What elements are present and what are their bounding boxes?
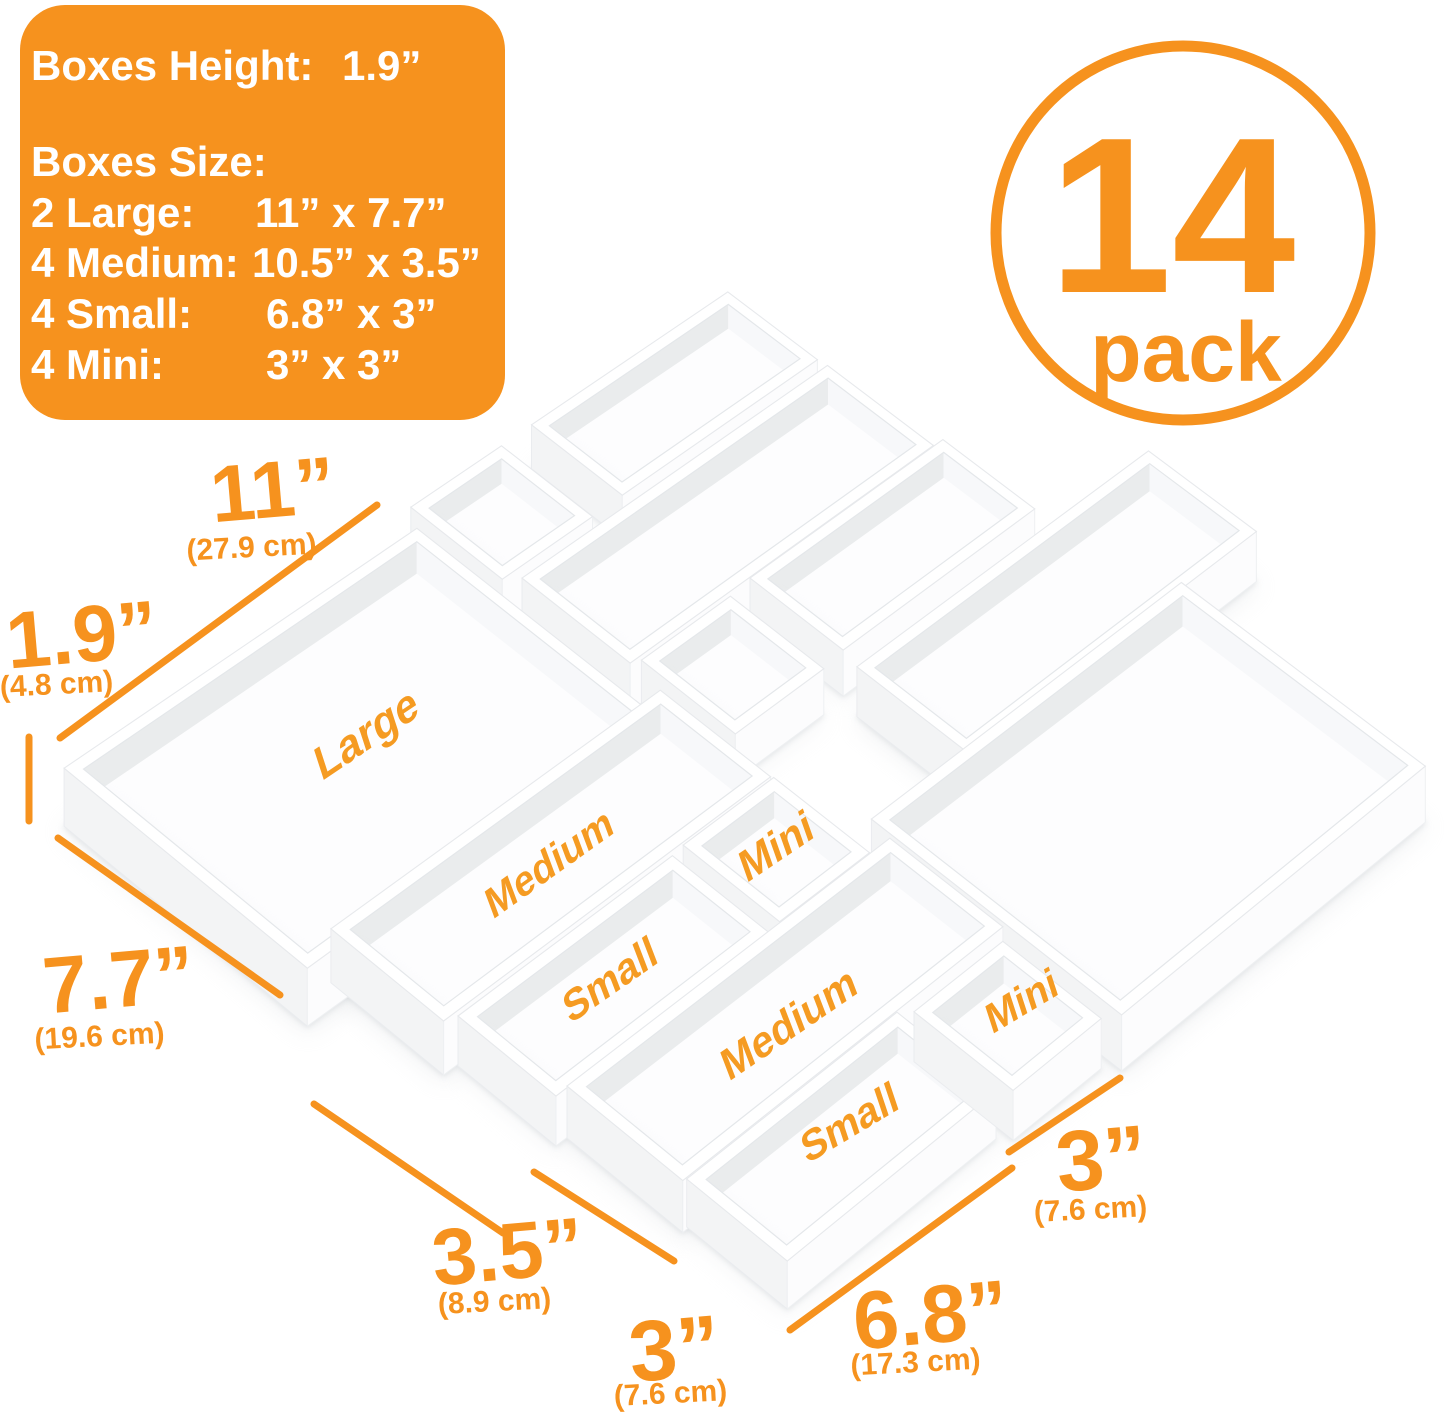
svg-text:11” x 7.7”: 11” x 7.7” [255, 189, 446, 236]
svg-text:(27.9 cm): (27.9 cm) [186, 528, 318, 568]
svg-text:(8.9 cm): (8.9 cm) [437, 1282, 552, 1321]
svg-text:6.8” x 3”: 6.8” x 3” [266, 290, 436, 337]
svg-text:(17.3 cm): (17.3 cm) [850, 1343, 982, 1383]
svg-text:7.7”: 7.7” [39, 929, 197, 1031]
svg-text:2 Large:: 2 Large: [31, 189, 194, 236]
svg-text:11”: 11” [207, 440, 339, 540]
svg-text:4 Small:: 4 Small: [31, 290, 192, 337]
svg-text:3” x 3”: 3” x 3” [266, 341, 401, 388]
svg-text:10.5” x 3.5”: 10.5” x 3.5” [252, 239, 481, 286]
svg-text:1.9”: 1.9” [342, 42, 421, 89]
svg-text:4 Mini:: 4 Mini: [31, 341, 164, 388]
svg-text:14: 14 [1049, 92, 1296, 340]
svg-text:Boxes Height:: Boxes Height: [31, 42, 313, 89]
svg-text:(7.6 cm): (7.6 cm) [613, 1374, 728, 1413]
svg-text:4 Medium:: 4 Medium: [31, 239, 239, 286]
svg-text:Boxes Size:: Boxes Size: [31, 138, 267, 185]
svg-text:(4.8 cm): (4.8 cm) [0, 665, 114, 704]
svg-text:(19.6 cm): (19.6 cm) [34, 1017, 166, 1057]
svg-text:(7.6 cm): (7.6 cm) [1033, 1190, 1148, 1229]
svg-text:pack: pack [1090, 305, 1282, 399]
